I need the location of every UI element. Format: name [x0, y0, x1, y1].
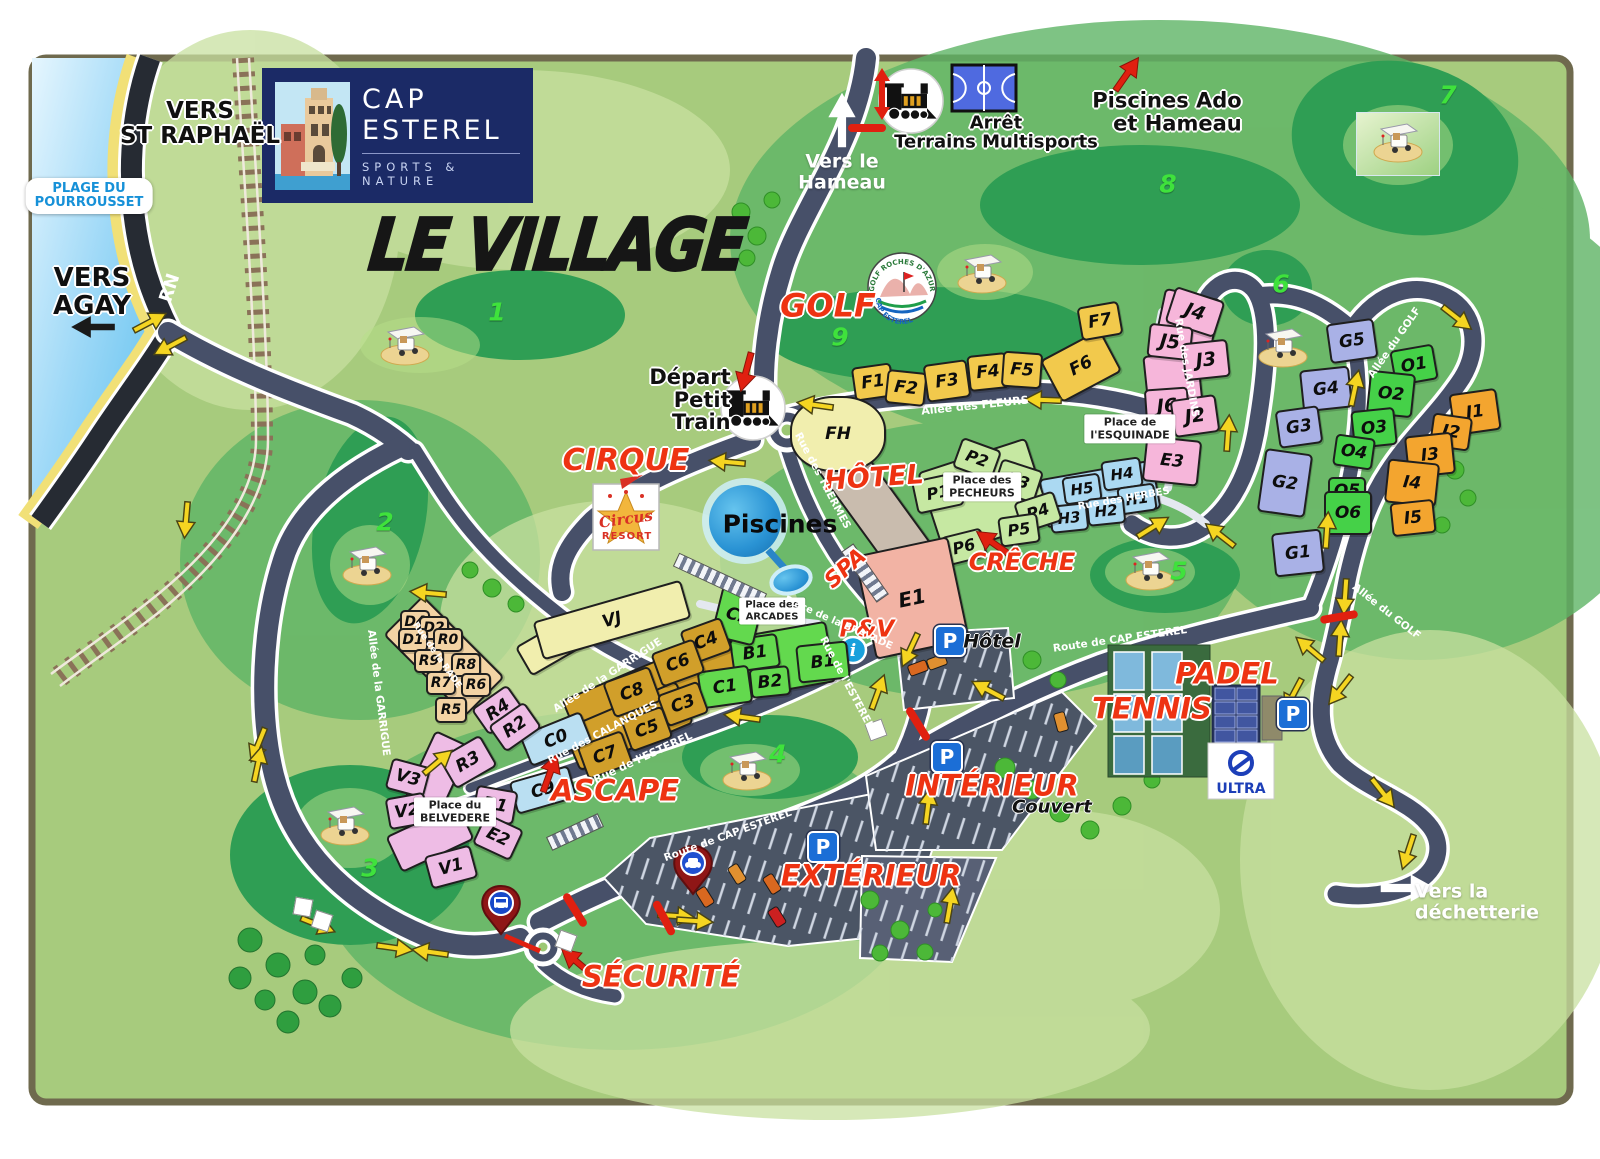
- padel-court-brown: [1262, 696, 1282, 740]
- logo-cap-text: CAP: [362, 84, 533, 115]
- map-canvas: ULTRA GOLF ROCHES D'AZUR CAP ESTEREL Cir…: [0, 0, 1600, 1159]
- logo-esterel-text: ESTEREL: [362, 115, 533, 146]
- resort-map: ULTRA GOLF ROCHES D'AZUR CAP ESTEREL Cir…: [0, 0, 1600, 1159]
- ultra-logo: ULTRA: [1208, 743, 1274, 799]
- cap-esterel-logo: CAP ESTEREL SPORTS & NATURE: [262, 68, 533, 203]
- circus-resort-logo: Circus RESORT: [593, 475, 659, 550]
- train-depart-icon: [721, 376, 785, 440]
- circus-subtitle: RESORT: [602, 531, 652, 542]
- tennis-courts-photo: [1108, 645, 1210, 777]
- train-stop-icon-hameau: [879, 69, 943, 133]
- logo-divider: [362, 153, 520, 154]
- logo-tagline: SPORTS & NATURE: [362, 160, 533, 188]
- info-sign-letter: i: [850, 641, 856, 661]
- ultra-label: ULTRA: [1216, 781, 1265, 797]
- info-sign-icon: i: [840, 637, 866, 663]
- logo-village-art-icon: [275, 82, 350, 190]
- multisport-court-icon: [952, 65, 1016, 111]
